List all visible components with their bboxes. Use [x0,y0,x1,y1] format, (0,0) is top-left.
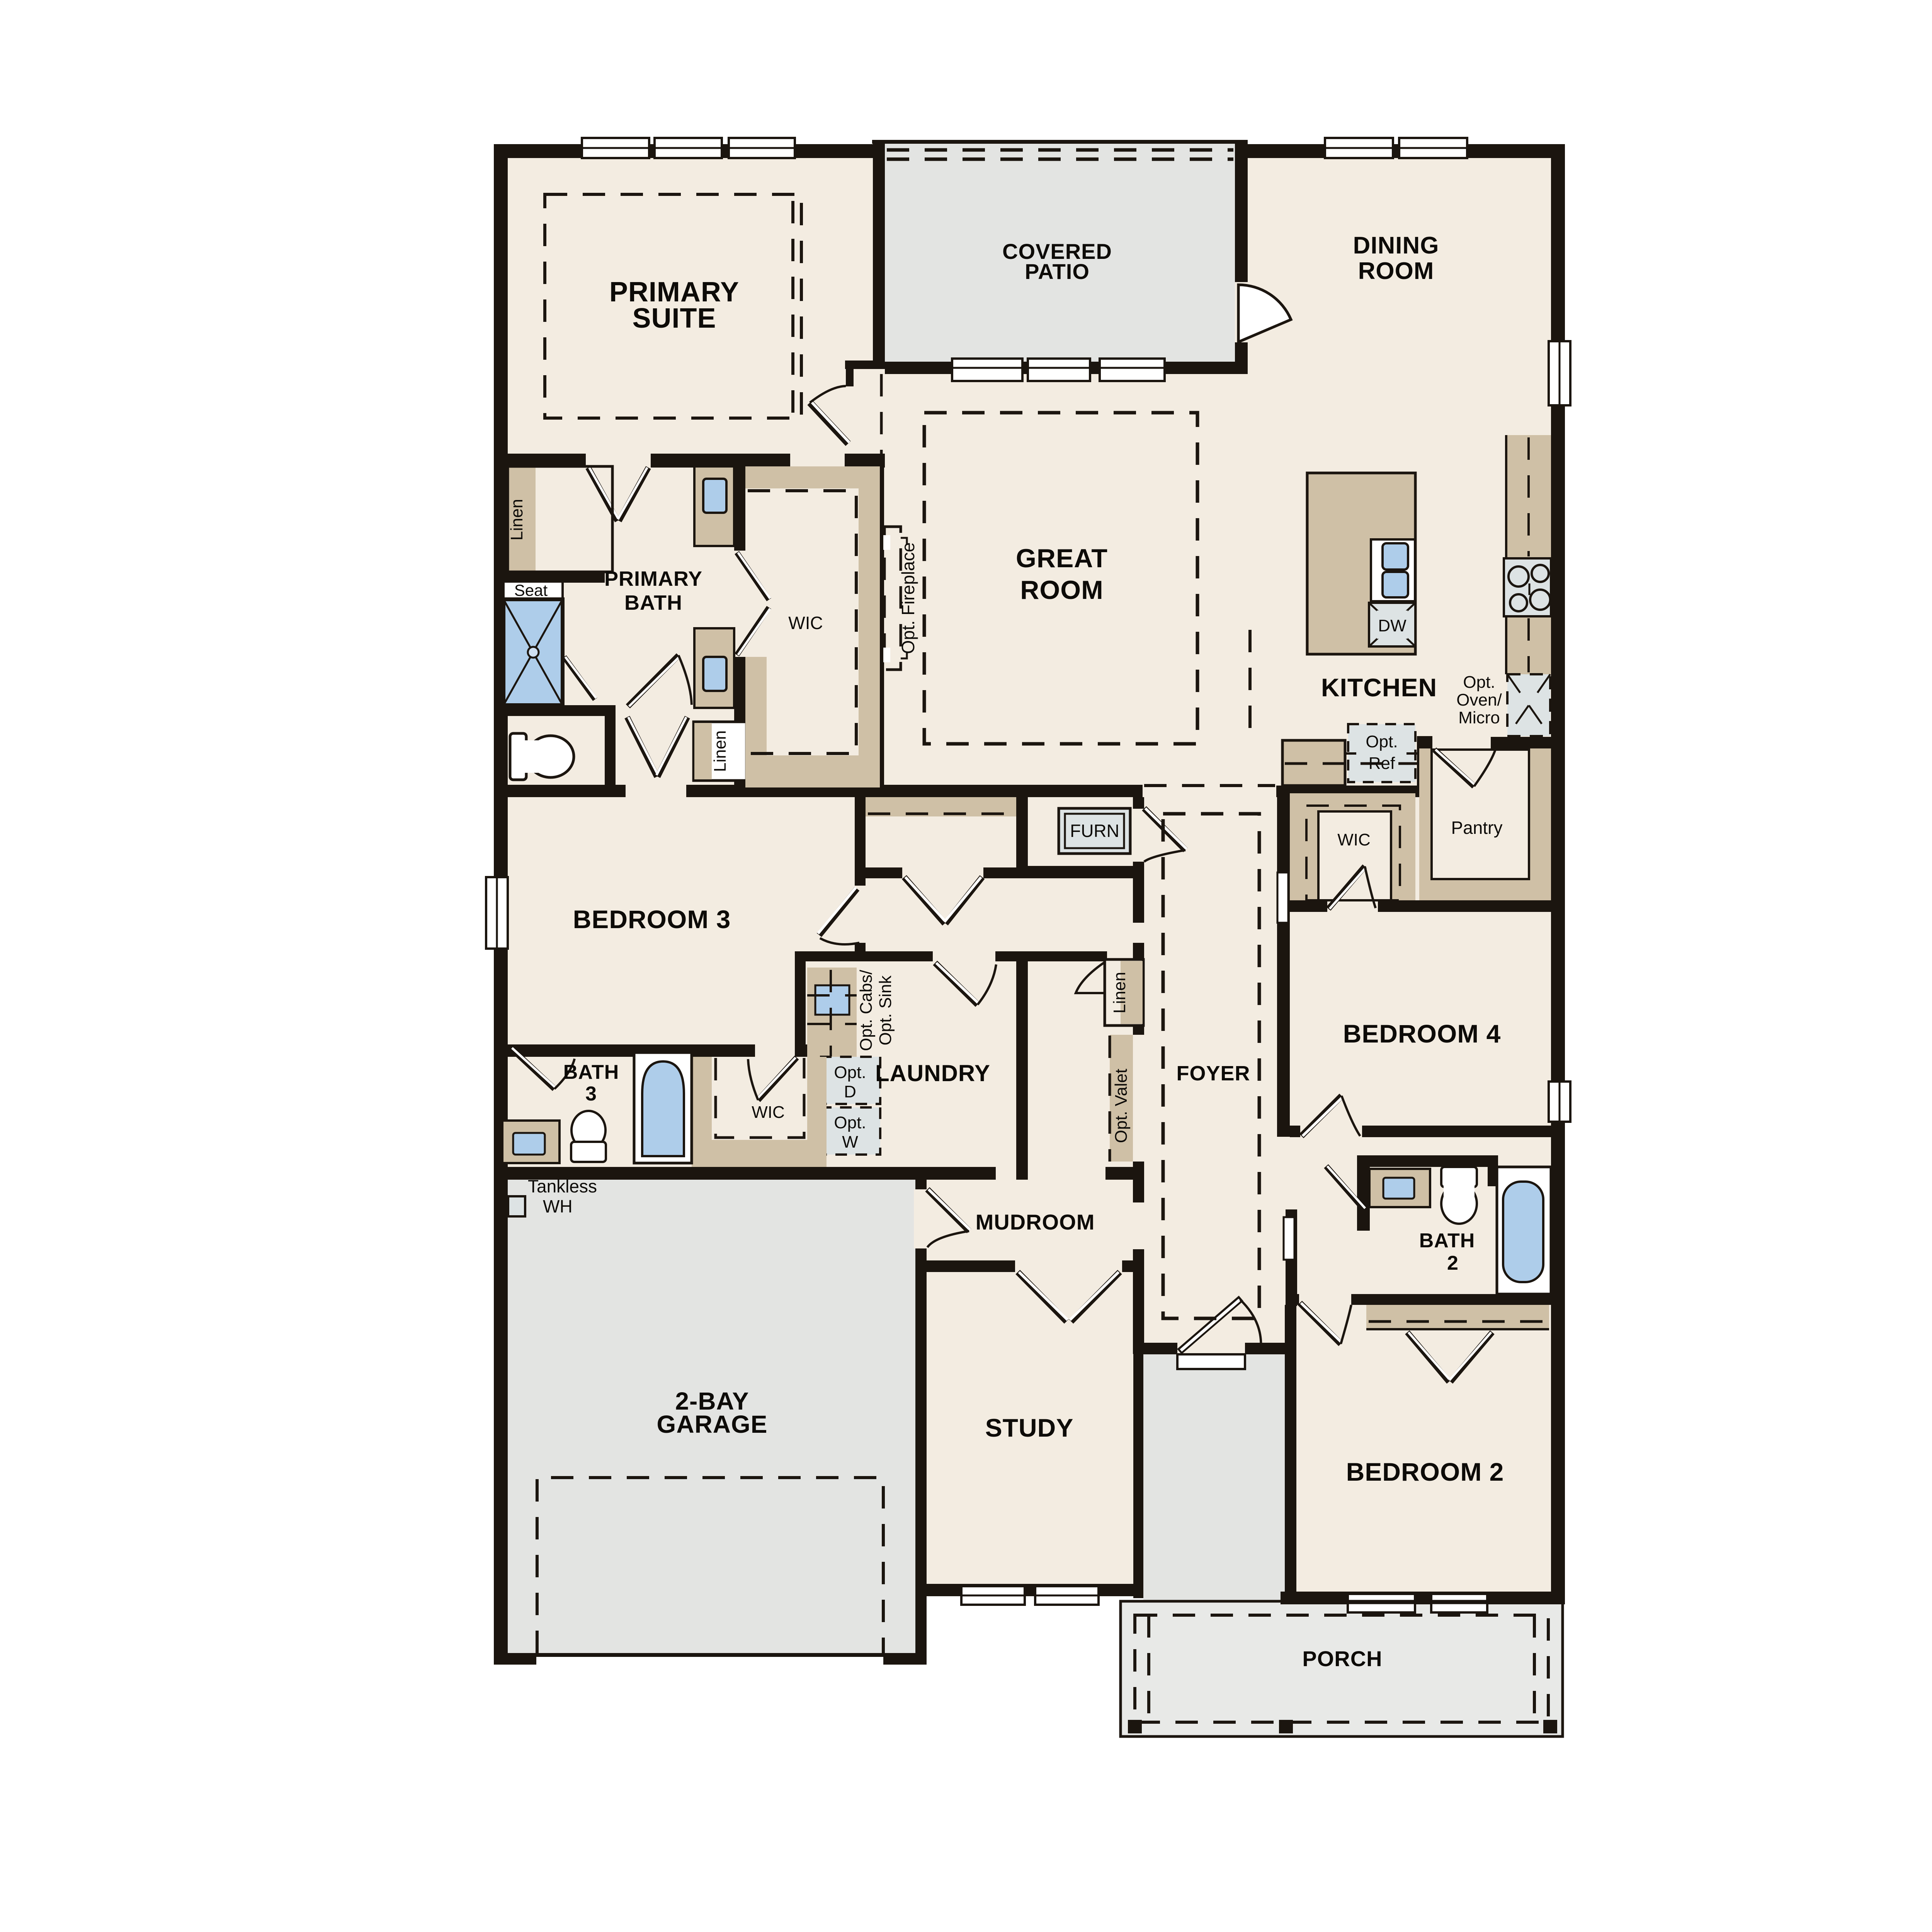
svg-text:3: 3 [585,1083,597,1105]
svg-text:BEDROOM 4: BEDROOM 4 [1343,1019,1501,1048]
svg-text:ROOM: ROOM [1020,575,1104,605]
svg-text:D: D [844,1082,856,1101]
svg-text:Opt. Sink: Opt. Sink [876,975,895,1046]
svg-text:Pantry: Pantry [1451,818,1503,838]
svg-text:Micro: Micro [1458,708,1500,727]
svg-text:DW: DW [1378,616,1406,635]
svg-text:WH: WH [543,1196,573,1216]
svg-text:Opt.: Opt. [834,1113,866,1132]
svg-text:Opt. Cabs/: Opt. Cabs/ [857,969,876,1051]
svg-text:BEDROOM 3: BEDROOM 3 [573,905,731,934]
svg-text:BATH: BATH [1419,1230,1475,1252]
svg-text:KITCHEN: KITCHEN [1321,673,1437,702]
svg-text:Opt.: Opt. [834,1063,866,1082]
svg-text:Seat: Seat [514,581,548,599]
svg-text:2: 2 [1447,1252,1459,1274]
svg-text:PATIO: PATIO [1025,259,1090,284]
svg-text:MUDROOM: MUDROOM [976,1210,1095,1234]
svg-text:W: W [842,1133,858,1151]
svg-text:WIC: WIC [752,1103,785,1122]
svg-text:STUDY: STUDY [985,1413,1074,1442]
svg-text:Opt.: Opt. [1463,673,1495,692]
svg-text:GREAT: GREAT [1016,544,1108,573]
svg-text:PORCH: PORCH [1302,1646,1382,1671]
svg-text:DINING: DINING [1353,232,1439,259]
svg-text:FOYER: FOYER [1176,1062,1250,1085]
svg-text:SUITE: SUITE [632,303,716,334]
svg-text:BATH: BATH [624,591,682,614]
svg-text:Linen: Linen [711,730,730,772]
svg-text:Opt. Valet: Opt. Valet [1112,1069,1131,1143]
svg-text:Ref: Ref [1369,754,1395,773]
svg-text:Linen: Linen [507,499,526,541]
svg-text:FURN: FURN [1070,821,1119,841]
svg-text:GARAGE: GARAGE [657,1410,768,1438]
svg-text:LAUNDRY: LAUNDRY [875,1060,990,1086]
svg-text:Oven/: Oven/ [1456,690,1502,709]
svg-text:WIC: WIC [1337,830,1371,849]
svg-text:BEDROOM 2: BEDROOM 2 [1346,1458,1504,1486]
svg-text:Linen: Linen [1110,972,1129,1014]
svg-text:Tankless: Tankless [528,1176,597,1196]
svg-text:Opt. Fireplace: Opt. Fireplace [898,543,918,654]
svg-text:PRIMARY: PRIMARY [604,567,702,590]
svg-text:WIC: WIC [788,613,823,633]
svg-text:ROOM: ROOM [1358,258,1434,284]
svg-text:BATH: BATH [563,1061,619,1083]
svg-text:Opt.: Opt. [1366,732,1398,751]
